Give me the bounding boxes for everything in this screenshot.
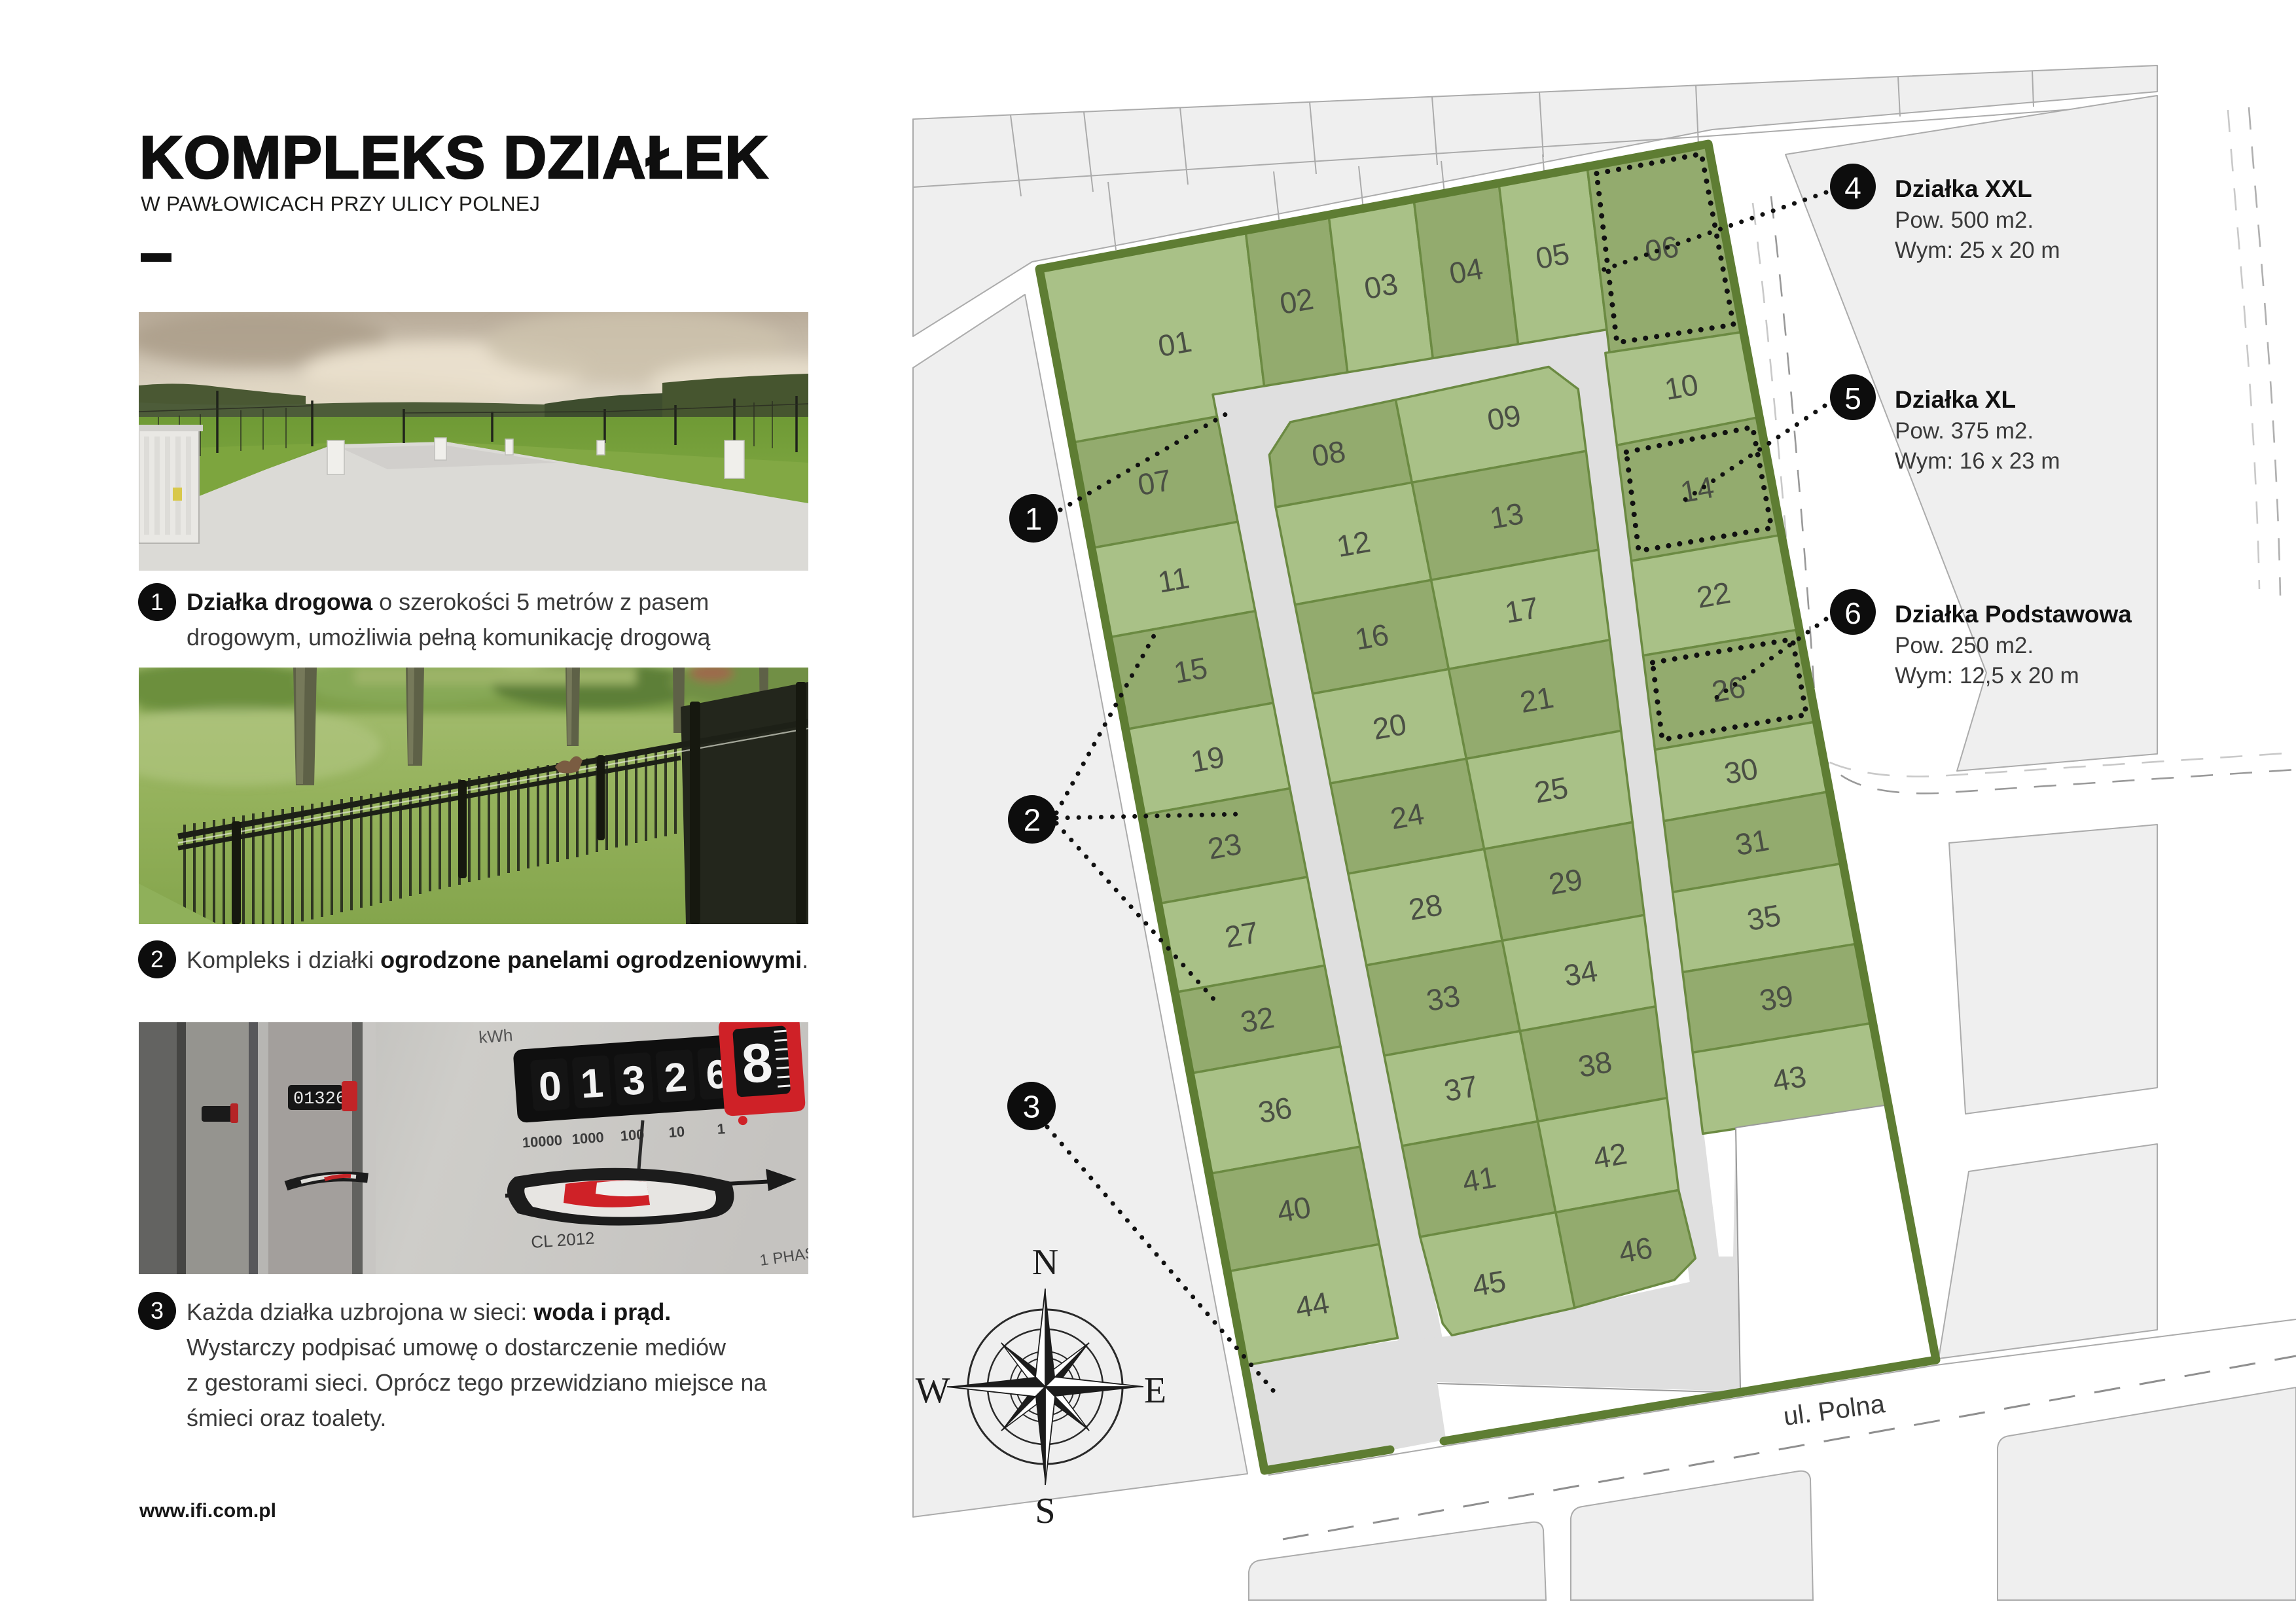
svg-text:37: 37: [1441, 1069, 1480, 1108]
svg-text:Działka Podstawowa: Działka Podstawowa: [1895, 601, 2132, 628]
svg-text:08: 08: [1309, 434, 1348, 473]
svg-text:22: 22: [1694, 575, 1732, 615]
svg-text:6: 6: [1844, 596, 1861, 630]
svg-text:ul. Polna: ul. Polna: [1782, 1389, 1887, 1431]
svg-text:34: 34: [1561, 954, 1600, 993]
svg-text:5: 5: [1844, 382, 1861, 416]
svg-text:2: 2: [1024, 804, 1041, 838]
svg-text:24: 24: [1388, 796, 1426, 836]
svg-text:02: 02: [1277, 281, 1316, 321]
svg-text:3: 3: [1023, 1090, 1041, 1125]
svg-text:44: 44: [1293, 1285, 1331, 1325]
svg-text:01: 01: [1155, 324, 1194, 363]
svg-text:E: E: [1144, 1370, 1166, 1411]
svg-text:05: 05: [1533, 236, 1571, 276]
svg-text:25: 25: [1532, 770, 1570, 810]
svg-text:N: N: [1032, 1242, 1058, 1283]
svg-text:04: 04: [1446, 251, 1485, 291]
svg-text:23: 23: [1205, 827, 1244, 866]
svg-text:06: 06: [1642, 229, 1681, 268]
svg-text:35: 35: [1744, 898, 1783, 937]
svg-text:20: 20: [1370, 707, 1408, 746]
svg-text:38: 38: [1575, 1044, 1614, 1084]
svg-text:45: 45: [1469, 1264, 1508, 1303]
svg-text:12: 12: [1334, 524, 1372, 563]
svg-text:S: S: [1035, 1491, 1055, 1531]
svg-text:4: 4: [1844, 171, 1861, 205]
svg-text:1: 1: [1025, 503, 1043, 537]
svg-text:26: 26: [1709, 669, 1748, 709]
svg-text:07: 07: [1135, 463, 1174, 502]
svg-text:Wym: 16 x 23 m: Wym: 16 x 23 m: [1895, 448, 2060, 474]
svg-text:Wym: 25 x 20 m: Wym: 25 x 20 m: [1895, 238, 2060, 263]
svg-text:15: 15: [1171, 651, 1210, 690]
svg-text:31: 31: [1732, 823, 1771, 862]
svg-text:Działka XL: Działka XL: [1895, 386, 2016, 413]
svg-text:41: 41: [1460, 1160, 1498, 1199]
svg-text:43: 43: [1770, 1059, 1808, 1098]
svg-text:09: 09: [1484, 398, 1523, 437]
svg-text:27: 27: [1222, 915, 1261, 954]
svg-text:Pow. 375 m2.: Pow. 375 m2.: [1895, 418, 2034, 444]
svg-text:Pow. 250 m2.: Pow. 250 m2.: [1895, 633, 2034, 658]
svg-text:46: 46: [1616, 1230, 1655, 1270]
svg-text:33: 33: [1424, 978, 1462, 1018]
svg-text:16: 16: [1352, 617, 1391, 656]
svg-text:40: 40: [1274, 1190, 1313, 1229]
svg-text:Pow. 500 m2.: Pow. 500 m2.: [1895, 207, 2034, 233]
svg-text:17: 17: [1502, 590, 1541, 630]
svg-text:13: 13: [1487, 496, 1526, 535]
svg-text:29: 29: [1546, 862, 1585, 901]
svg-text:36: 36: [1255, 1090, 1294, 1130]
svg-text:Wym: 12,5 x 20 m: Wym: 12,5 x 20 m: [1895, 663, 2079, 688]
svg-text:28: 28: [1406, 887, 1444, 927]
svg-text:30: 30: [1721, 751, 1760, 791]
svg-text:42: 42: [1590, 1136, 1629, 1175]
svg-text:32: 32: [1238, 1000, 1276, 1039]
svg-text:39: 39: [1757, 978, 1795, 1018]
svg-text:03: 03: [1361, 266, 1400, 306]
svg-text:W: W: [916, 1370, 950, 1411]
svg-text:21: 21: [1517, 680, 1556, 719]
svg-text:Działka XXL: Działka XXL: [1895, 175, 2032, 202]
svg-text:11: 11: [1155, 560, 1192, 599]
svg-text:19: 19: [1188, 740, 1227, 779]
svg-text:14: 14: [1677, 470, 1716, 509]
svg-text:10: 10: [1662, 367, 1700, 406]
